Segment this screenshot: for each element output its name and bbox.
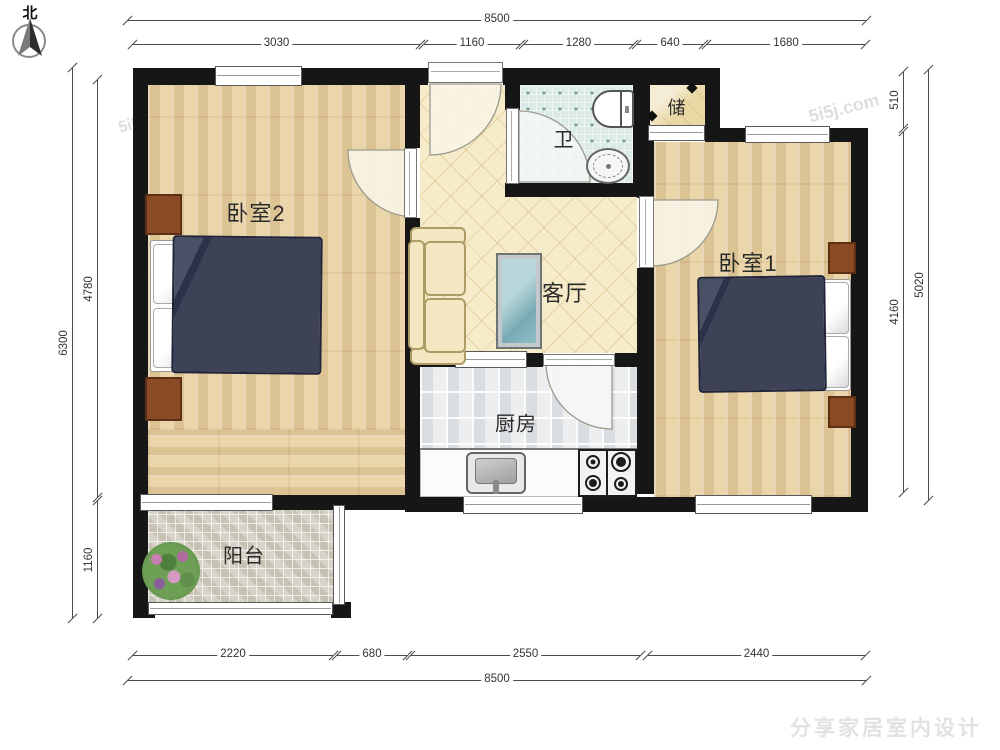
bedroom1-door-swing-arc xyxy=(652,200,718,266)
dim-left-seg: 4780 xyxy=(97,80,98,497)
bedroom2-window xyxy=(215,66,302,86)
wall-segment xyxy=(503,68,720,85)
dim-bottom-seg: 2220 xyxy=(133,655,333,656)
balcony-side-railing xyxy=(333,505,345,605)
kitchen-door-swing-arc xyxy=(546,363,612,429)
balcony-front-railing xyxy=(148,602,333,615)
bedroom1-nightstand xyxy=(828,242,856,274)
storage-sliding-door xyxy=(648,125,705,141)
dim-right-total: 5020 xyxy=(928,70,929,500)
bathroom-label: 卫 xyxy=(554,124,575,153)
dim-bottom-total: 8500 xyxy=(128,680,866,681)
living-room-label: 客厅 xyxy=(542,276,588,308)
wall-segment xyxy=(133,68,148,618)
dim-top-seg: 1280 xyxy=(524,44,633,45)
toilet-tank-line xyxy=(620,92,622,126)
dim-top-seg: 3030 xyxy=(133,44,420,45)
balcony-plant-icon xyxy=(142,542,200,600)
bathroom-door-leaf xyxy=(506,108,519,184)
wall-segment xyxy=(851,128,868,500)
dim-top-total: 8500 xyxy=(128,20,866,21)
kitchen-label: 厨房 xyxy=(495,408,537,437)
dim-left-total: 6300 xyxy=(72,68,73,618)
bedroom2-label: 卧室2 xyxy=(226,196,285,228)
sink-faucet xyxy=(493,480,499,494)
dim-bottom-seg: 680 xyxy=(337,655,407,656)
toilet-icon xyxy=(592,90,634,128)
bedroom1-door-leaf xyxy=(639,196,654,268)
dim-bottom-seg: 2550 xyxy=(411,655,640,656)
balcony-door-window xyxy=(140,494,273,511)
bedroom1-label: 卧室1 xyxy=(718,246,777,278)
dim-right-seg: 510 xyxy=(903,72,904,128)
footer-watermark: 分享家居室内设计 xyxy=(790,712,982,742)
bedroom2-nightstand xyxy=(145,377,182,421)
bedroom1-nightstand xyxy=(828,396,856,428)
balcony-label: 阳台 xyxy=(223,540,265,569)
bathroom-sink-icon xyxy=(586,148,630,184)
dim-top-seg: 640 xyxy=(637,44,703,45)
floorplan-canvas: 北 5i5j.com 5i5j.com 5i5j.com 5i5j.com 5i… xyxy=(0,0,1000,750)
bedroom1-bottom-window xyxy=(695,495,812,514)
kitchen-sink-icon xyxy=(466,452,526,494)
bedroom2-bed-duvet xyxy=(171,235,322,375)
wall-segment xyxy=(637,268,654,494)
sofa-backrest xyxy=(408,240,425,350)
sofa-cushion xyxy=(424,241,466,296)
wall-segment xyxy=(405,85,420,148)
dim-bottom-seg: 2440 xyxy=(648,655,865,656)
entrance-door-swing-arc xyxy=(430,84,501,155)
dim-top-seg: 1160 xyxy=(424,44,520,45)
wall-segment xyxy=(615,353,653,367)
bedroom2-nightstand xyxy=(145,194,182,235)
tv-cabinet xyxy=(496,253,542,349)
dim-right-seg: 4160 xyxy=(903,132,904,492)
wall-segment xyxy=(583,497,695,512)
wall-segment xyxy=(302,68,428,85)
wall-segment xyxy=(812,497,868,512)
kitchen-window xyxy=(463,495,583,514)
entrance-door-leaf xyxy=(428,62,503,83)
bedroom1-top-window xyxy=(745,126,830,143)
wall-segment xyxy=(505,85,520,110)
tv-screen xyxy=(502,259,536,343)
kitchen-door-leaf xyxy=(543,354,615,366)
bedroom1-bed-duvet xyxy=(697,275,827,393)
sofa-cushion xyxy=(424,298,466,353)
wall-segment xyxy=(405,497,463,512)
sink-drain xyxy=(606,164,611,169)
bedroom2-door-leaf xyxy=(404,148,417,218)
storage-label: 储 xyxy=(668,94,687,120)
dim-left-seg: 1160 xyxy=(97,501,98,618)
wall-segment xyxy=(527,353,543,367)
dim-top-seg: 1680 xyxy=(707,44,865,45)
bedroom1-pillow xyxy=(822,282,849,334)
stove-icon xyxy=(578,449,637,497)
wall-segment xyxy=(273,495,420,510)
wall-segment xyxy=(705,128,745,142)
toilet-flush-button xyxy=(625,106,629,113)
wall-segment xyxy=(505,183,650,197)
